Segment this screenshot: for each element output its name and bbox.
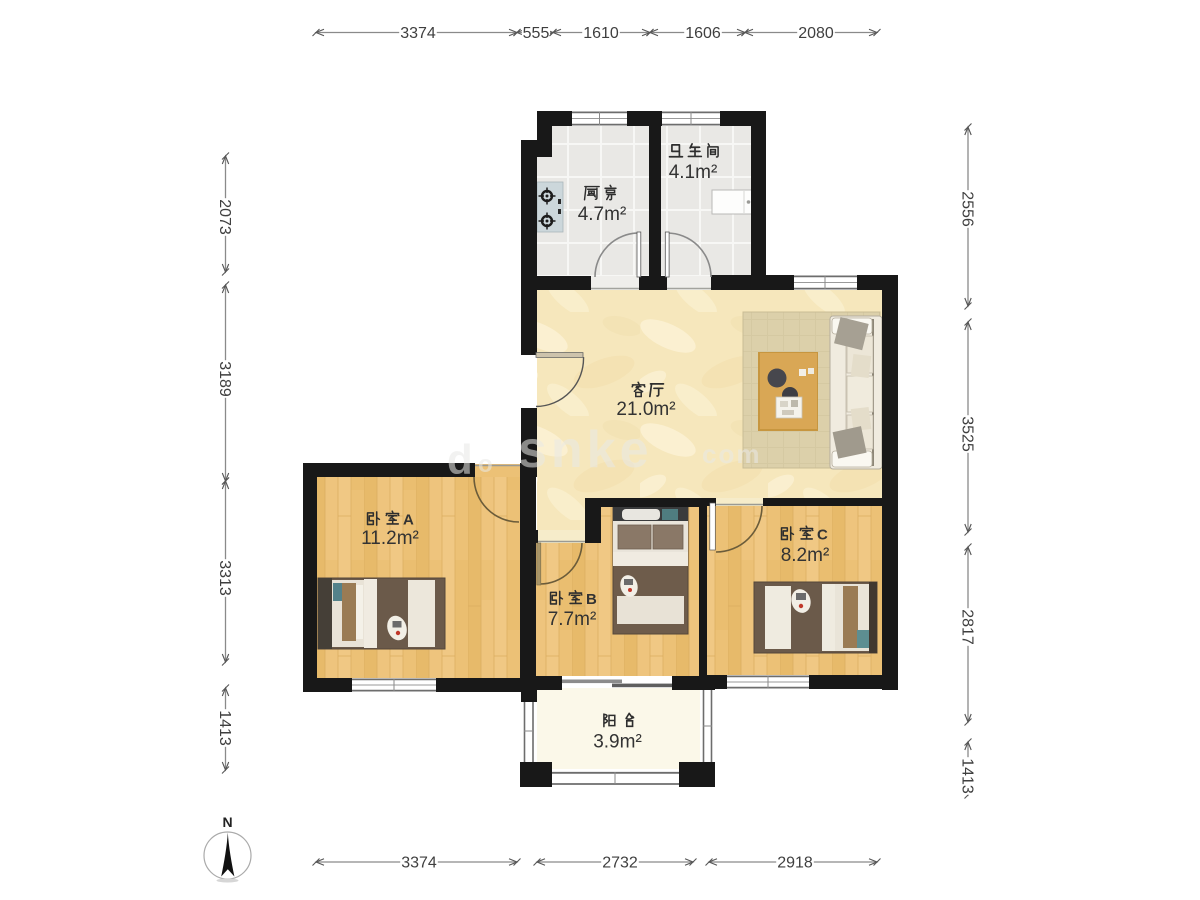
- svg-text:snke: snke: [518, 421, 653, 479]
- svg-text:2918: 2918: [777, 855, 813, 872]
- svg-text:2732: 2732: [602, 855, 638, 872]
- svg-text:3.9m²: 3.9m²: [593, 732, 642, 753]
- svg-text:com: com: [702, 439, 761, 469]
- svg-text:B: B: [586, 591, 597, 608]
- svg-text:N: N: [222, 814, 232, 830]
- svg-text:A: A: [403, 512, 414, 529]
- svg-text:11.2m²: 11.2m²: [361, 528, 419, 549]
- svg-text:3313: 3313: [216, 560, 233, 596]
- svg-text:2073: 2073: [216, 199, 233, 235]
- svg-text:21.0m²: 21.0m²: [616, 399, 675, 420]
- svg-text:3374: 3374: [400, 25, 436, 42]
- svg-text:1413: 1413: [959, 758, 976, 794]
- svg-text:8.2m²: 8.2m²: [781, 545, 830, 566]
- svg-text:3374: 3374: [401, 855, 437, 872]
- svg-text:1606: 1606: [685, 25, 721, 42]
- svg-text:3525: 3525: [959, 416, 976, 452]
- svg-text:C: C: [817, 527, 828, 544]
- svg-text:2080: 2080: [798, 25, 834, 42]
- svg-text:7.7m²: 7.7m²: [548, 609, 597, 630]
- svg-text:2556: 2556: [959, 191, 976, 227]
- svg-text:o: o: [478, 451, 493, 478]
- svg-text:1610: 1610: [583, 25, 619, 42]
- svg-text:3189: 3189: [216, 361, 233, 397]
- svg-text:d: d: [447, 436, 473, 483]
- svg-text:4.7m²: 4.7m²: [578, 204, 627, 225]
- svg-text:2817: 2817: [959, 609, 976, 645]
- svg-text:1413: 1413: [216, 710, 233, 746]
- svg-text:555: 555: [523, 25, 550, 42]
- svg-text:4.1m²: 4.1m²: [669, 162, 718, 183]
